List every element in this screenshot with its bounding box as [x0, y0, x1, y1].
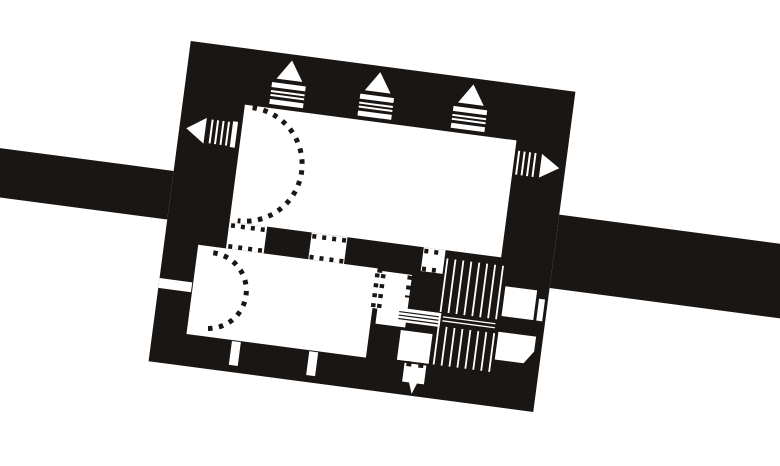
floor-plan-svg — [0, 0, 780, 466]
floor-plan-page — [0, 0, 780, 466]
entrance-door-stop-right — [418, 363, 424, 369]
entrance-lobby — [397, 330, 433, 364]
entrance-door-stop-left — [406, 361, 412, 367]
site-wall-left — [0, 143, 174, 219]
floor-plan-drawing — [149, 41, 576, 412]
stair-landing-upper — [502, 286, 538, 320]
site-wall-right — [550, 215, 780, 321]
